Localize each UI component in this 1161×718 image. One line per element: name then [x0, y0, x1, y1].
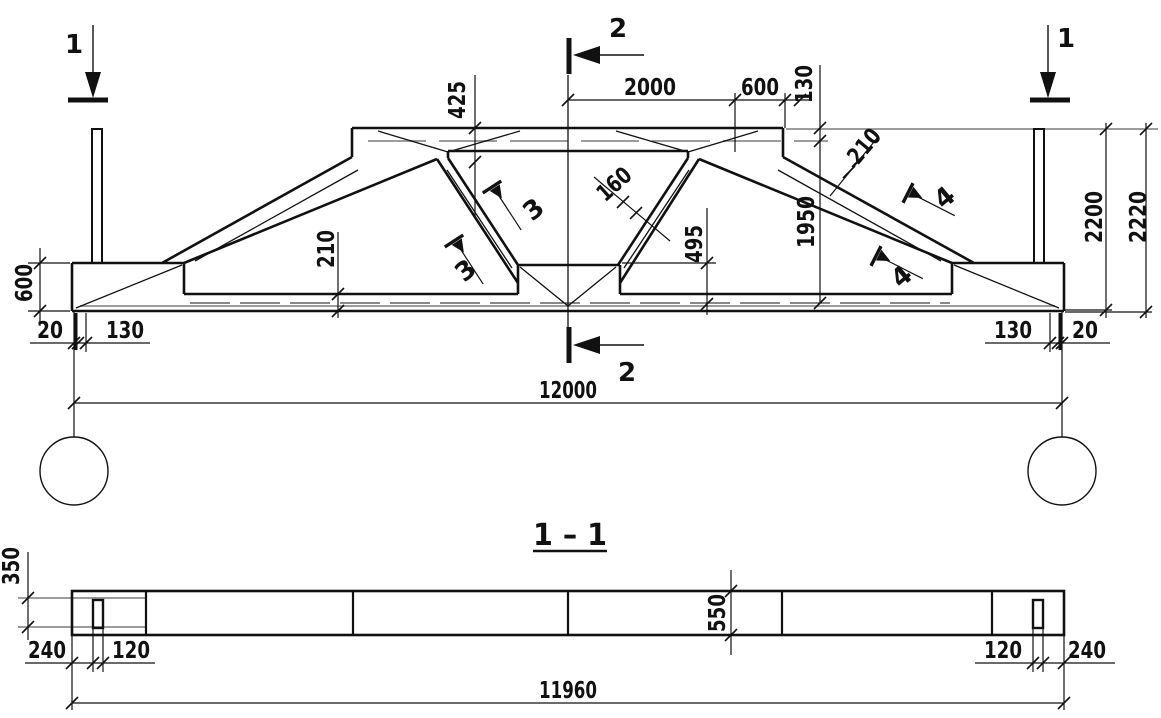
cut-2-bottom-label: 2 [618, 358, 636, 388]
dim-top-right: 600 [741, 75, 779, 101]
dim-top-edge: 130 [792, 65, 818, 103]
dim-span: 12000 [539, 378, 597, 404]
dim-embed-right: 120 [984, 638, 1022, 664]
dim-embed-left: 120 [112, 638, 150, 664]
cut-1-right-label: 1 [1057, 24, 1075, 54]
truss-drawing: 1 1 2 2 3 3 4 4 2000 600 130 425 210 195… [0, 0, 1161, 718]
dim-end-left: 240 [28, 638, 66, 664]
section-title: 1 – 1 [533, 518, 607, 553]
dim-width: 550 [705, 594, 731, 632]
cut-2-top-label: 2 [609, 14, 627, 44]
dim-pad-right: 20 [1072, 318, 1098, 344]
dim-pad-left: 20 [37, 318, 63, 344]
dim-node-height: 495 [682, 225, 708, 263]
dim-bottom-chord: 210 [314, 230, 340, 268]
dim-end-right: 240 [1068, 638, 1106, 664]
dim-seat-right: 130 [994, 318, 1032, 344]
dim-top-center: 2000 [624, 75, 676, 101]
dim-flange: 350 [0, 547, 25, 585]
dim-end-height: 600 [12, 264, 38, 302]
dim-plate-drop: 425 [445, 81, 471, 119]
cut-1-left-label: 1 [65, 30, 83, 60]
dim-length: 11960 [539, 678, 597, 704]
dim-mid-height: 1950 [794, 196, 820, 248]
drawing-canvas: 1 1 2 2 3 3 4 4 2000 600 130 425 210 195… [0, 0, 1161, 718]
paper-background [0, 0, 1161, 718]
dim-height-2220: 2220 [1126, 191, 1152, 243]
dim-height-2200: 2200 [1082, 191, 1108, 243]
dim-seat-left: 130 [106, 318, 144, 344]
